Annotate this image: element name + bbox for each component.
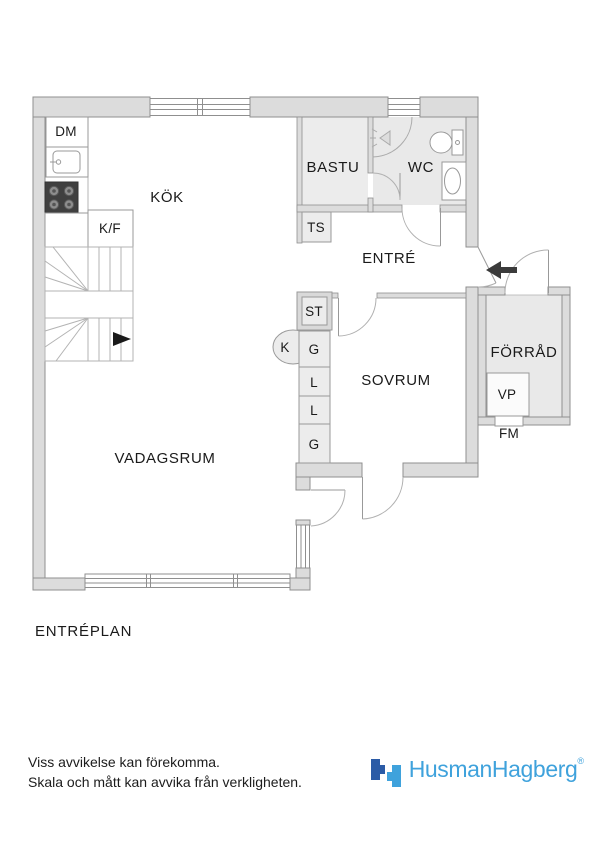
registered-mark: ® xyxy=(577,757,584,766)
window-wc xyxy=(388,99,420,116)
door-terrace xyxy=(311,490,345,526)
toilet xyxy=(430,130,463,155)
washbasin xyxy=(442,162,466,200)
husmanhagberg-logo: HusmanHagberg ® xyxy=(370,756,584,788)
wall-east-window-cap xyxy=(296,520,310,525)
wall-wc-hall xyxy=(440,205,466,212)
husmanhagberg-logo-icon xyxy=(370,758,402,788)
wall-top-left xyxy=(33,97,150,117)
storage-wall-top-right xyxy=(548,287,570,295)
label-fridge-freezer: K/F xyxy=(99,221,121,236)
wall-right-mid xyxy=(466,287,478,477)
label-wc: WC xyxy=(408,159,434,176)
wall-bottom-left xyxy=(33,578,85,590)
door-wc xyxy=(402,208,441,246)
wall-bedroom-south-left xyxy=(296,463,362,477)
floor-plan-drawing: KÖK BASTU WC ENTRÉ SOVRUM FÖRRÅD VADAGSR… xyxy=(0,0,600,700)
logo-mark-dark xyxy=(371,759,385,780)
entrance-arrow-icon xyxy=(486,261,517,279)
label-linen-upper: L xyxy=(310,375,318,390)
wall-right-upper xyxy=(466,117,478,247)
label-drying-cabinet: TS xyxy=(307,220,325,235)
storage-wall-left xyxy=(478,287,486,425)
storage-wall-right xyxy=(562,287,570,425)
wall-top-right xyxy=(420,97,478,117)
wall-sauna-wc-upper xyxy=(368,117,373,173)
label-storage: FÖRRÅD xyxy=(491,343,558,361)
wall-top-mid xyxy=(250,97,388,117)
label-dishwasher: DM xyxy=(55,124,77,139)
label-wardrobe-top: G xyxy=(309,342,320,357)
label-cleaning-cabinet: ST xyxy=(305,304,323,319)
footer: Viss avvikelse kan förekomma. Skala och … xyxy=(28,752,584,792)
floor-plan-page: KÖK BASTU WC ENTRÉ SOVRUM FÖRRÅD VADAGSR… xyxy=(0,0,600,849)
wall-kitchen-sauna xyxy=(297,117,302,243)
storage-wall-top-left xyxy=(478,287,505,295)
meter-cabinet-box xyxy=(495,416,523,426)
label-hall: ENTRÉ xyxy=(362,250,416,267)
staircase xyxy=(45,247,133,361)
wall-sauna-wc-lower xyxy=(368,198,373,212)
wall-east-stub-upper xyxy=(296,477,310,490)
door-bedroom xyxy=(339,298,377,336)
window-kitchen xyxy=(150,99,250,116)
label-sauna: BASTU xyxy=(306,159,359,176)
label-chimney: K xyxy=(280,340,289,355)
counter-box xyxy=(45,213,88,247)
disclaimer-line-2: Skala och mått kan avvika från verklighe… xyxy=(28,772,302,792)
window-living-south xyxy=(85,574,290,588)
label-wardrobe-bottom: G xyxy=(309,437,320,452)
window-living-east xyxy=(297,525,310,568)
label-linen-lower: L xyxy=(310,403,318,418)
disclaimer-line-1: Viss avvikelse kan förekomma. xyxy=(28,752,302,772)
cabinets xyxy=(297,212,332,463)
door-bedroom-south xyxy=(363,477,404,519)
logo-mark-light xyxy=(387,765,401,787)
label-living-room: VADAGSRUM xyxy=(115,450,216,467)
wall-sauna-hall xyxy=(297,205,402,212)
label-bedroom: SOVRUM xyxy=(361,372,430,389)
stove xyxy=(45,182,78,213)
label-meter-cabinet: FM xyxy=(499,426,519,441)
wall-bottom-right xyxy=(290,578,310,590)
stair-direction-arrow-icon xyxy=(113,332,131,346)
wall-bedroom-south-right xyxy=(403,463,478,477)
wall-east-stub-lower xyxy=(296,568,310,578)
wall-left xyxy=(33,117,45,590)
storage-wall-bottom xyxy=(478,417,570,425)
plan-title: ENTRÉPLAN xyxy=(35,623,132,640)
wall-bedroom-north-stub xyxy=(332,293,338,298)
brand-name: HusmanHagberg xyxy=(409,756,578,783)
disclaimer: Viss avvikelse kan förekomma. Skala och … xyxy=(28,752,302,792)
label-kitchen: KÖK xyxy=(150,188,183,206)
kitchen-sink xyxy=(46,147,88,177)
wall-bedroom-north xyxy=(377,293,466,298)
label-heat-pump: VP xyxy=(498,387,517,402)
